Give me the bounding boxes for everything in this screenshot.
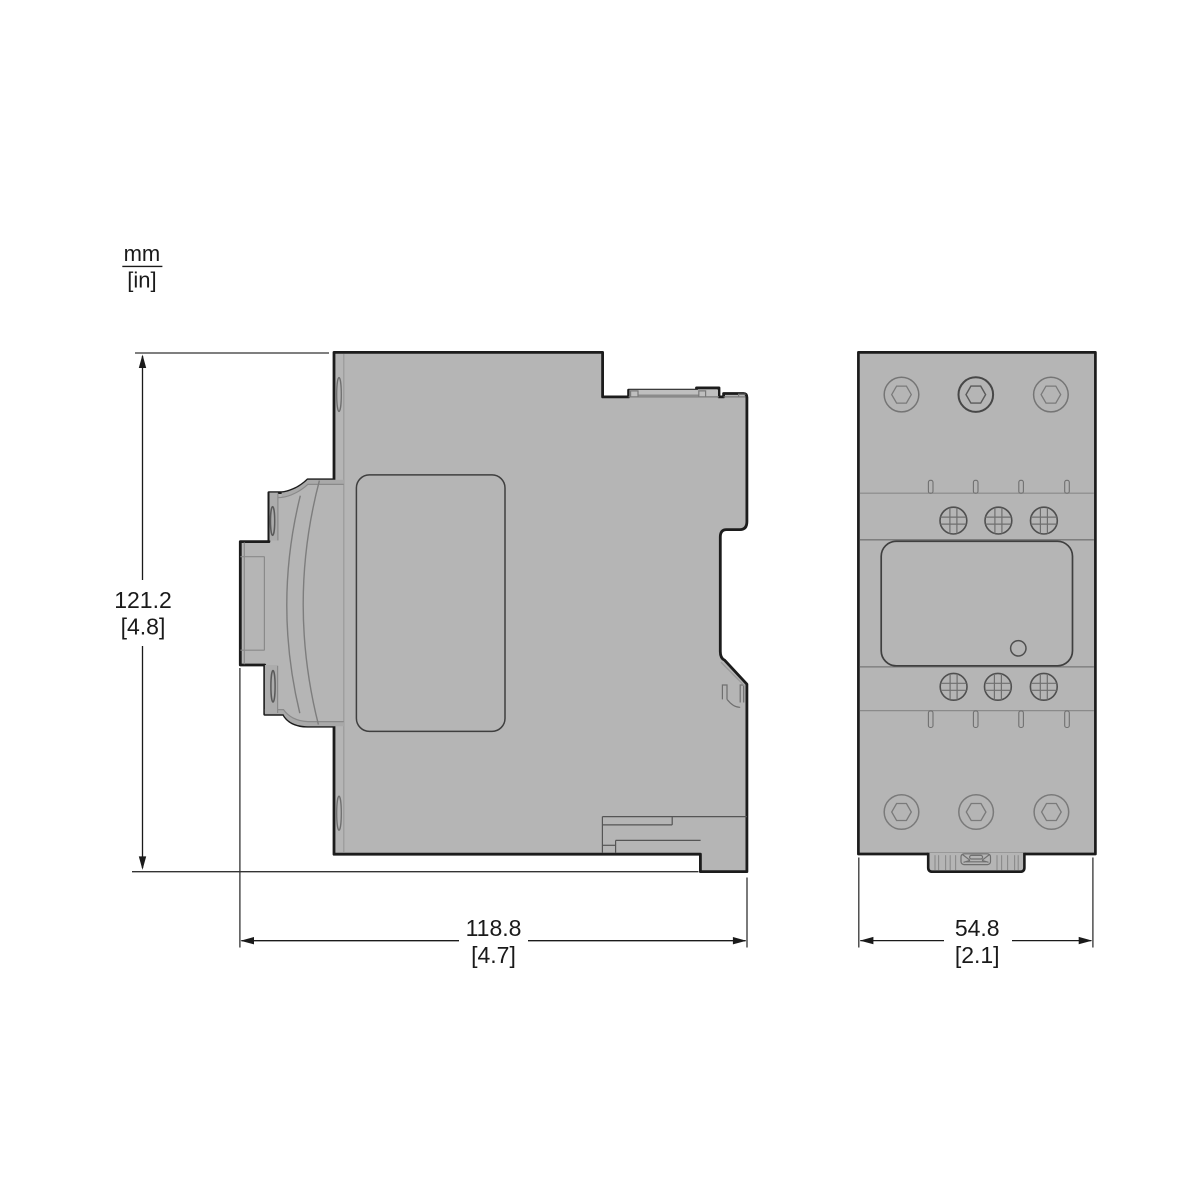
svg-text:[4.7]: [4.7]: [471, 942, 516, 968]
svg-text:mm: mm: [124, 241, 161, 266]
svg-text:121.2: 121.2: [114, 587, 172, 613]
svg-text:[in]: [in]: [127, 268, 156, 293]
svg-text:54.8: 54.8: [955, 915, 1000, 941]
svg-text:[4.8]: [4.8]: [121, 614, 166, 640]
svg-text:118.8: 118.8: [466, 915, 522, 941]
svg-text:[2.1]: [2.1]: [955, 942, 1000, 968]
